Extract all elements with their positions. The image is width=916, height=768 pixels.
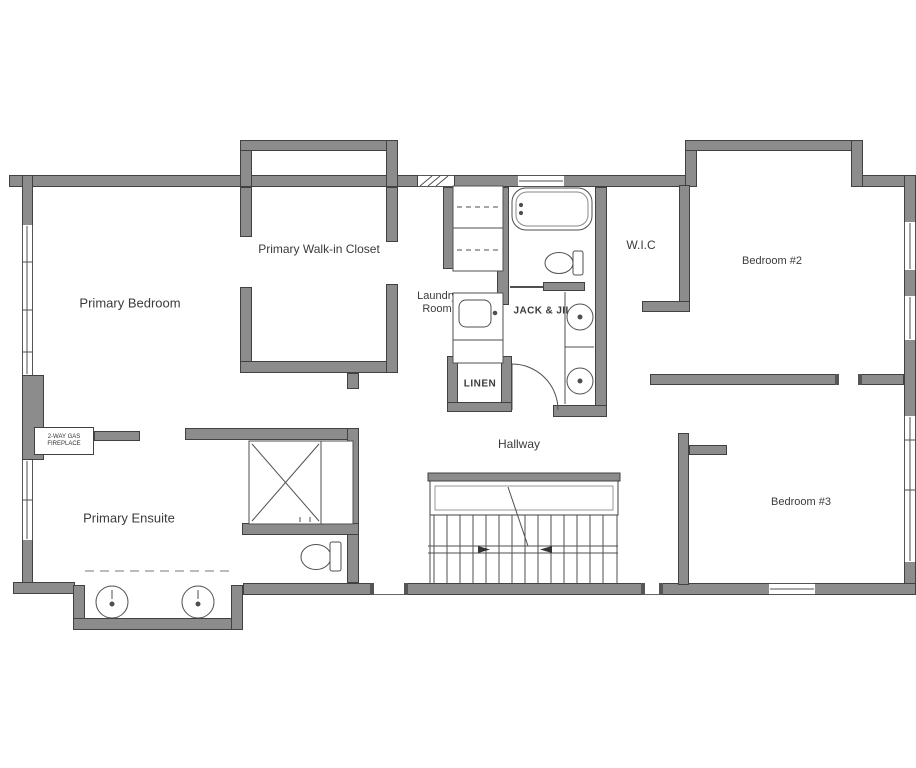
window: [769, 583, 815, 595]
label-bench: BENCH: [333, 465, 343, 497]
wall: [386, 140, 398, 187]
wall: [595, 187, 607, 417]
wall: [447, 402, 512, 412]
wall: [240, 140, 398, 151]
window: [904, 296, 916, 340]
room-label-jack-and-jill: JACK & JILL: [514, 306, 579, 317]
stair-railing-inner: [435, 486, 613, 510]
wall: [240, 187, 252, 237]
sink-drain: [578, 315, 582, 319]
wall: [679, 185, 690, 311]
wall: [851, 140, 863, 187]
toilet-tank: [330, 542, 341, 571]
room-label-laundry-line2: Room: [422, 303, 451, 315]
wall: [73, 618, 243, 630]
bathtub-inner: [516, 192, 588, 226]
attic-opening: [418, 175, 454, 187]
sink-drain: [196, 602, 200, 606]
room-label-bedroom-3: Bedroom #3: [771, 496, 831, 508]
sink-drain: [578, 379, 582, 383]
laundry-sink-fixture: [459, 300, 491, 327]
wall: [454, 175, 688, 187]
vanity-sink-fixture: [96, 586, 128, 618]
floor-plan: 2-WAY GAS FIREPLACE Primary Bedroom Prim…: [0, 0, 916, 768]
wall: [242, 523, 359, 535]
wall: [858, 374, 904, 385]
label-dryer: D: [473, 203, 484, 210]
room-label-primary-bedroom: Primary Bedroom: [79, 296, 180, 311]
wall: [9, 175, 418, 187]
wall: [553, 405, 607, 417]
toilet-fixture: [545, 253, 573, 274]
laundry-counter: [453, 293, 503, 363]
door-opening: [645, 583, 659, 595]
wall: [650, 374, 839, 385]
window: [904, 222, 916, 270]
stair-arrow-right: [478, 546, 490, 553]
wall: [347, 428, 359, 583]
stair-direction-line: [508, 487, 528, 546]
wall: [386, 284, 398, 373]
wall: [642, 301, 690, 312]
window: [904, 416, 916, 562]
laundry-faucet: [493, 311, 497, 315]
sink-fixture: [567, 368, 593, 394]
room-label-hallway: Hallway: [498, 437, 540, 451]
sink-drain: [110, 602, 114, 606]
fireplace-label-box: 2-WAY GAS FIREPLACE: [34, 427, 94, 455]
wall: [231, 585, 243, 630]
stair-railing-box: [430, 481, 618, 515]
wall: [240, 361, 398, 373]
wall: [243, 583, 916, 595]
wall: [543, 282, 585, 291]
label-shower: SHOWER: [270, 473, 323, 485]
wall: [689, 445, 727, 455]
room-label-laundry-line1: Laundry: [417, 290, 457, 302]
fireplace-label-line1: 2-WAY GAS: [48, 434, 81, 441]
wall: [443, 187, 454, 269]
wall: [347, 373, 359, 389]
wall: [386, 187, 398, 242]
toilet-tank: [573, 251, 583, 275]
wall: [497, 187, 509, 305]
stair-arrow-left: [540, 546, 552, 553]
wall: [13, 582, 75, 594]
wall: [185, 428, 357, 440]
room-label-bedroom-2: Bedroom #2: [742, 255, 802, 267]
tub-faucet: [519, 211, 522, 214]
tub-faucet: [519, 203, 522, 206]
toilet-fixture: [301, 545, 331, 570]
vanity-sink-fixture: [182, 586, 214, 618]
wall: [94, 431, 140, 441]
window: [22, 225, 33, 375]
room-label-linen: LINEN: [464, 379, 497, 390]
door-opening: [373, 583, 404, 595]
wall: [240, 287, 252, 371]
bathtub-fixture: [512, 188, 592, 230]
room-label-wic: W.I.C: [626, 238, 655, 252]
label-washer: W: [472, 242, 483, 251]
window: [22, 460, 33, 540]
wall: [678, 433, 689, 585]
room-label-walkin-closet: Primary Walk-in Closet: [258, 242, 380, 256]
door-swing-arc: [512, 364, 558, 410]
window: [518, 175, 564, 187]
stair-railing-top: [428, 473, 620, 481]
fireplace-label-line2: FIREPLACE: [47, 441, 80, 448]
room-label-primary-ensuite: Primary Ensuite: [83, 511, 175, 526]
wall: [685, 140, 863, 151]
